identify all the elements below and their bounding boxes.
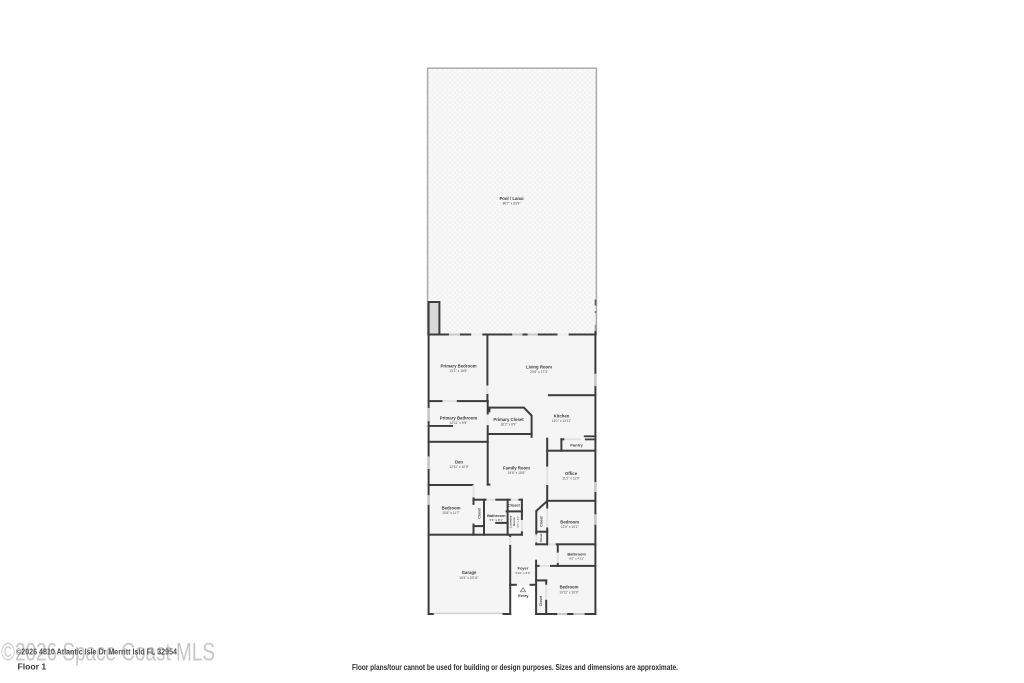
svg-text:12'11" x 9'5": 12'11" x 9'5" bbox=[450, 421, 468, 425]
svg-text:Bedroom: Bedroom bbox=[442, 505, 461, 510]
svg-text:Pantry: Pantry bbox=[570, 442, 583, 447]
svg-text:Closet: Closet bbox=[540, 515, 544, 526]
svg-text:Bedroom: Bedroom bbox=[560, 585, 579, 590]
svg-text:10'6" x 11'7": 10'6" x 11'7" bbox=[442, 511, 460, 515]
svg-text:15'1" x 12'11": 15'1" x 12'11" bbox=[552, 419, 572, 423]
svg-text:Closet: Closet bbox=[508, 503, 521, 508]
svg-text:5'10" x 6'9": 5'10" x 6'9" bbox=[515, 571, 530, 575]
svg-text:Room: Room bbox=[512, 517, 516, 526]
svg-text:Kitchen: Kitchen bbox=[554, 413, 570, 418]
svg-text:Entry: Entry bbox=[518, 593, 529, 598]
svg-text:Den: Den bbox=[455, 459, 463, 464]
svg-text:12'11" x 10'9": 12'11" x 10'9" bbox=[449, 465, 469, 469]
svg-text:5'1" x 8'1": 5'1" x 8'1" bbox=[490, 518, 504, 522]
svg-text:Primary Closet: Primary Closet bbox=[493, 417, 524, 422]
svg-text:19'4" x 20'11": 19'4" x 20'11" bbox=[459, 576, 479, 580]
svg-text:8'5" x 4'11": 8'5" x 4'11" bbox=[569, 557, 584, 561]
svg-text:Living Room: Living Room bbox=[526, 364, 552, 369]
svg-text:Garage: Garage bbox=[462, 570, 477, 575]
svg-text:Closet: Closet bbox=[539, 595, 543, 606]
svg-text:Bathroom: Bathroom bbox=[487, 513, 506, 518]
svg-text:Closet: Closet bbox=[477, 507, 481, 518]
svg-text:©2026 4810 Atlantic Isle Dr Me: ©2026 4810 Atlantic Isle Dr Merritt Isld… bbox=[16, 648, 177, 657]
svg-text:Primary Bathroom: Primary Bathroom bbox=[440, 415, 478, 420]
svg-text:Office: Office bbox=[565, 471, 578, 476]
svg-text:Closet: Closet bbox=[539, 534, 543, 543]
svg-text:5'5" x 8'1": 5'5" x 8'1" bbox=[516, 516, 520, 528]
svg-text:80'7" x 63'9": 80'7" x 63'9" bbox=[503, 202, 522, 206]
svg-text:Bathroom: Bathroom bbox=[567, 551, 586, 556]
svg-text:19'6" x 15'6": 19'6" x 15'6" bbox=[508, 471, 527, 475]
svg-text:12'9" x 10'1": 12'9" x 10'1" bbox=[561, 525, 580, 529]
svg-text:Pool / Lanai: Pool / Lanai bbox=[499, 196, 523, 201]
svg-text:Family Room: Family Room bbox=[503, 465, 530, 470]
svg-text:20'6" x 17'3": 20'6" x 17'3" bbox=[530, 370, 549, 374]
svg-text:Floor plans/tour cannot be use: Floor plans/tour cannot be used for buil… bbox=[352, 663, 678, 672]
svg-text:Floor 1: Floor 1 bbox=[18, 662, 47, 672]
svg-text:10'11" x 10'9": 10'11" x 10'9" bbox=[559, 590, 579, 594]
svg-text:16'2" x 6'9": 16'2" x 6'9" bbox=[500, 423, 517, 427]
svg-text:11'2" x 11'9": 11'2" x 11'9" bbox=[562, 477, 580, 481]
svg-text:Bedroom: Bedroom bbox=[560, 519, 579, 524]
svg-text:Primary Bedroom: Primary Bedroom bbox=[440, 363, 476, 368]
svg-text:13'1" x 16'8": 13'1" x 16'8" bbox=[450, 369, 469, 373]
svg-text:Foyer: Foyer bbox=[518, 566, 529, 571]
